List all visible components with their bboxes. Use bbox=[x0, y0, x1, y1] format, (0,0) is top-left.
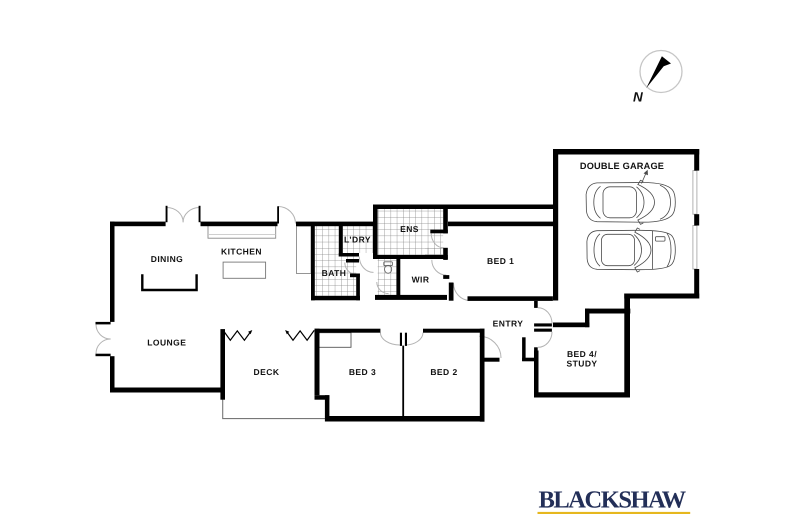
svg-text:DOUBLE GARAGE: DOUBLE GARAGE bbox=[580, 161, 664, 171]
svg-text:DECK: DECK bbox=[254, 367, 280, 377]
svg-text:LOUNGE: LOUNGE bbox=[147, 338, 186, 348]
svg-text:STUDY: STUDY bbox=[566, 358, 597, 368]
svg-text:WIR: WIR bbox=[412, 275, 430, 285]
svg-text:L’DRY: L’DRY bbox=[344, 235, 371, 245]
svg-text:BATH: BATH bbox=[322, 268, 347, 278]
svg-text:BED 2: BED 2 bbox=[430, 367, 457, 377]
svg-text:N: N bbox=[633, 90, 643, 105]
svg-text:BED 1: BED 1 bbox=[487, 256, 514, 266]
svg-text:BED 3: BED 3 bbox=[349, 367, 376, 377]
svg-text:DINING: DINING bbox=[151, 254, 183, 264]
svg-text:ENTRY: ENTRY bbox=[493, 319, 524, 329]
svg-text:BLACKSHAW: BLACKSHAW bbox=[539, 487, 687, 514]
svg-text:ENS: ENS bbox=[400, 224, 419, 234]
svg-text:KITCHEN: KITCHEN bbox=[221, 247, 262, 257]
